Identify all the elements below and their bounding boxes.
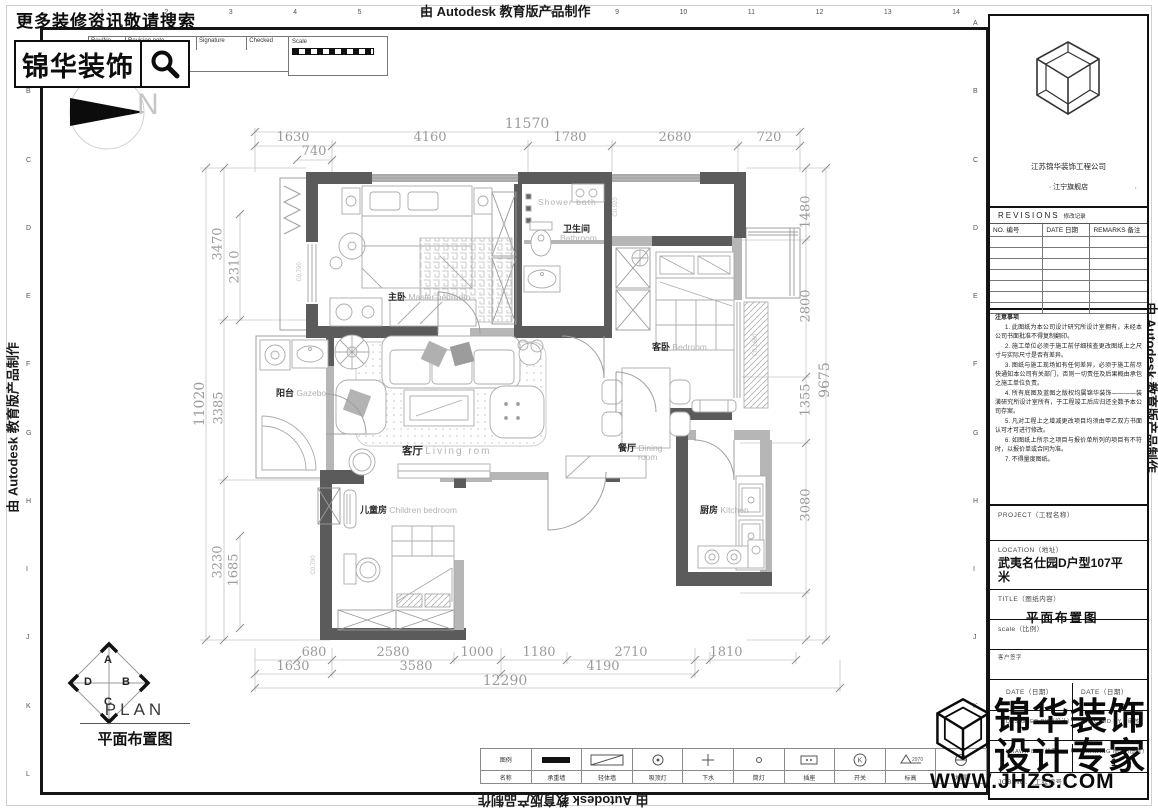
dim: 2800: [799, 289, 814, 322]
room-bath-en: Bathroom: [560, 233, 597, 243]
window-code: C0.1680: [753, 334, 759, 357]
field-scale: scale（比例）: [990, 620, 1147, 650]
revisions-cell: [1090, 237, 1147, 247]
legend-label: 承重墙: [532, 771, 582, 783]
revisions-cell: [1043, 259, 1090, 269]
store-name: · 江宁旗舰店: [990, 182, 1147, 192]
search-icon: [142, 42, 188, 86]
legend-title-text: 图例: [500, 755, 512, 764]
panel-notes-section: 注意事项 1. 此图纸为本公司设计研究所设计室拥有，未经本公司书面批准不得复制翻…: [990, 310, 1147, 506]
dim-top-total: 11570: [505, 116, 550, 132]
cad-floorplan-page: 1234567891011121314 ABCDEFGHIJKL ABCDEFG…: [0, 0, 1158, 810]
room-label-guest: 客卧 Bedroom: [652, 340, 707, 353]
floor-plan-drawing: [0, 0, 1158, 810]
revisions-cell: [1043, 237, 1090, 247]
watermark-cube-logo: [934, 696, 992, 762]
revisions-col-1: DATE 日期: [1043, 224, 1090, 236]
room-living-en: Living rom: [425, 446, 491, 457]
compass-d: D: [84, 676, 92, 688]
dim: 2680: [658, 130, 691, 145]
title-block-panel: 江苏锦华装饰工程公司 · 江宁旗舰店 · REVISIONS 修改记录 NO. …: [988, 14, 1149, 800]
revisions-cell: [1043, 248, 1090, 258]
title-label: TITLE（图纸内容）: [998, 596, 1060, 603]
dim: 3580: [399, 659, 432, 674]
dim: 1630: [276, 659, 309, 674]
revisions-title-en: REVISIONS: [998, 211, 1060, 220]
legend-symbol-solid-wall: [532, 749, 582, 771]
dim: 1780: [553, 130, 586, 145]
project-label: PROJECT（工程名称）: [998, 512, 1074, 519]
legend-label: 插座: [785, 771, 835, 783]
dim: 4160: [413, 130, 446, 145]
legend-symbol-elevation: 2970: [886, 749, 936, 771]
note-item-7: 7. 不得量度图纸。: [995, 456, 1142, 465]
revisions-cell: [990, 248, 1043, 258]
legend-strip: 图例名称承重墙轻体墙吸顶灯下水筒灯插座K开关2970标高地漏: [480, 748, 987, 784]
legend-label: 筒灯: [734, 771, 784, 783]
plan-title-en: PLAN: [80, 700, 190, 720]
room-guest-en: Bedroom: [672, 342, 707, 352]
revisions-title: REVISIONS 修改记录: [990, 208, 1147, 224]
room-children-en: Children bedroom: [389, 505, 457, 515]
legend-symbol-light-wall: [582, 749, 632, 771]
revisions-cell: [1090, 248, 1147, 258]
room-shower-en: Shower bath: [538, 197, 597, 207]
legend-label: 开关: [835, 771, 885, 783]
scale-box: Scale: [288, 36, 388, 76]
room-kitchen-en: Kitchen: [720, 505, 748, 515]
dim: 1355: [799, 383, 814, 416]
dim: 3080: [799, 488, 814, 521]
revisions-row: [990, 281, 1147, 292]
scale-label: Scale: [292, 39, 307, 45]
room-living-zh: 客厅: [402, 445, 423, 457]
field-project: PROJECT（工程名称）: [990, 506, 1147, 541]
legend-symbol-downlight: [734, 749, 784, 771]
company-name: 江苏锦华装饰工程公司: [990, 161, 1147, 172]
legend-cell-轻体墙: 轻体墙: [582, 749, 633, 783]
note-item-4: 4. 所有底图及蓝图之版权均属锦华装饰————装潢研究所设计室所有，于工程竣工后…: [995, 390, 1142, 417]
notes-list: 1. 此图纸为本公司设计研究所设计室拥有，未经本公司书面批准不得复制翻印。2. …: [995, 324, 1142, 465]
panel-logo-section: 江苏锦华装饰工程公司 · 江宁旗舰店 ·: [990, 16, 1147, 208]
revisions-row: [990, 292, 1147, 303]
room-master-zh: 主卧: [388, 292, 406, 302]
checked-label: Checked: [247, 37, 289, 50]
dim: 2580: [376, 645, 409, 660]
panel-revisions-section: REVISIONS 修改记录 NO. 编号DATE 日期REMARKS 备注: [990, 208, 1147, 310]
legend-label: 下水: [683, 771, 733, 783]
room-label-dining-2: room: [638, 452, 657, 462]
dim: 1810: [709, 645, 742, 660]
room-label-living: 客厅 Living rom: [402, 443, 492, 458]
location-value: 武夷名仕园D户型107平米: [998, 556, 1124, 585]
room-label-bath-en: Bathroom: [560, 233, 597, 243]
dim: 740: [302, 144, 327, 159]
revisions-title-zh: 修改记录: [1064, 212, 1086, 220]
dim: 2310: [228, 250, 243, 283]
dim: 1685: [227, 553, 242, 586]
revisions-empty-rows: [990, 237, 1147, 314]
revisions-row: [990, 270, 1147, 281]
dim: 4190: [586, 659, 619, 674]
window-code: C0.790: [297, 262, 303, 281]
revisions-col-2: REMARKS 备注: [1090, 224, 1147, 236]
room-label-kitchen: 厨房 Kitchen: [700, 503, 749, 516]
room-balcony-zh: 阳台: [276, 388, 294, 398]
room-label-shower: Shower bath: [538, 197, 597, 207]
brand-box: 锦华装饰: [14, 40, 190, 88]
note-item-3: 3. 图纸与施工现场如有任何差异，必须于施工前尽快通知本公司有关部门，否则一切责…: [995, 362, 1142, 389]
legend-symbol-legend-title: 图例: [481, 749, 531, 771]
revisions-cell: [1043, 292, 1090, 302]
room-label-master: 主卧 Master bedroom: [388, 290, 470, 303]
brand-name: 锦华装饰: [16, 42, 142, 86]
svg-text:K: K: [858, 757, 863, 764]
revisions-row: [990, 259, 1147, 270]
room-guest-zh: 客卧: [652, 342, 670, 352]
window-code: C0.790: [311, 555, 317, 574]
revisions-cell: [1043, 281, 1090, 291]
window-code: C0.920: [613, 197, 619, 216]
compass-b: B: [122, 676, 130, 688]
note-item-1: 1. 此图纸为本公司设计研究所设计室拥有，未经本公司书面批准不得复制翻印。: [995, 324, 1142, 342]
field-client-sign: 客户签字: [990, 650, 1147, 680]
dim: 720: [757, 130, 782, 145]
revisions-cell: [1090, 259, 1147, 269]
scale-bar: [292, 48, 374, 55]
svg-text:2970: 2970: [912, 757, 923, 763]
scale-field-label: scale（比例）: [998, 626, 1044, 633]
revisions-cell: [990, 281, 1043, 291]
revisions-cell: [990, 259, 1043, 269]
legend-symbol-ceiling-lamp: [633, 749, 683, 771]
dim: 3230: [211, 545, 226, 578]
legend-label: 吸顶灯: [633, 771, 683, 783]
revisions-col-0: NO. 编号: [990, 224, 1043, 236]
field-title: TITLE（图纸内容） 平面布置图: [990, 590, 1147, 620]
dim: 1000: [460, 645, 493, 660]
dim: 2710: [614, 645, 647, 660]
revisions-header-row: NO. 编号DATE 日期REMARKS 备注: [990, 224, 1147, 237]
note-item-6: 6. 如图纸上所示之项目与报价单所列的项目有不符时，以报价单或合同为准。: [995, 437, 1142, 455]
note-item-5: 5. 凡对工程上之增减更改项目均须由甲乙双方书面认可才可进行修改。: [995, 418, 1142, 436]
room-kitchen-zh: 厨房: [700, 505, 718, 515]
room-balcony-en: Gazebo: [296, 388, 326, 398]
room-dining-zh: 餐厅: [618, 443, 636, 453]
revisions-cell: [990, 270, 1043, 280]
room-dining-en2: room: [638, 452, 657, 462]
legend-cell-开关: K开关: [835, 749, 886, 783]
dim-bottom-total: 12290: [483, 673, 528, 689]
room-label-balcony: 阳台 Gazebo: [276, 386, 326, 399]
legend-label: 轻体墙: [582, 771, 632, 783]
room-master-en: Master bedroom: [408, 292, 470, 302]
location-label: LOCATION（地址）: [998, 547, 1063, 554]
legend-label: 标高: [886, 771, 936, 783]
room-children-zh: 儿童房: [360, 505, 387, 515]
legend-symbol-switch: K: [835, 749, 885, 771]
signature-label: Signature: [197, 37, 247, 50]
legend-cell-吸顶灯: 吸顶灯: [633, 749, 684, 783]
revisions-cell: [990, 237, 1043, 247]
revisions-cell: [1043, 270, 1090, 280]
notes-title: 注意事项: [995, 314, 1142, 323]
compass-a: A: [104, 654, 112, 666]
legend-cell-承重墙: 承重墙: [532, 749, 583, 783]
dim: 1180: [522, 645, 555, 660]
revisions-cell: [1090, 270, 1147, 280]
plan-title-zh: 平面布置图: [80, 728, 190, 749]
legend-symbol-cross: [683, 749, 733, 771]
legend-label: 名称: [481, 771, 531, 783]
legend-cell-标高: 2970标高: [886, 749, 937, 783]
dim: 1480: [799, 195, 814, 228]
legend-cell-筒灯: 筒灯: [734, 749, 785, 783]
dim-right-total: 9675: [817, 362, 833, 398]
store-dot: ·: [1135, 185, 1137, 192]
revisions-cell: [990, 292, 1043, 302]
legend-cell-名称: 图例名称: [481, 749, 532, 783]
revisions-cell: [1090, 281, 1147, 291]
dim: 3385: [212, 391, 227, 424]
field-location: LOCATION（地址） 武夷名仕园D户型107平米: [990, 541, 1147, 590]
plan-title-divider: [80, 723, 190, 724]
client-sign-label: 客户签字: [998, 655, 1022, 661]
watermark-url: WWW.JHZS.COM: [930, 770, 1115, 794]
room-label-children: 儿童房 Children bedroom: [360, 503, 457, 516]
revisions-cell: [1090, 292, 1147, 302]
legend-symbol-socket: [785, 749, 835, 771]
dim: 3470: [211, 227, 226, 260]
legend-cell-下水: 下水: [683, 749, 734, 783]
revisions-row: [990, 248, 1147, 259]
company-cube-logo: [1033, 38, 1103, 118]
note-item-2: 2. 施工单位必须于施工前仔细核查更改图纸上之尺寸与实际尺寸是否有差异。: [995, 343, 1142, 361]
plan-title: PLAN 平面布置图: [80, 700, 190, 749]
legend-cell-插座: 插座: [785, 749, 836, 783]
dim: 680: [302, 645, 327, 660]
dim-left-total: 11020: [192, 382, 208, 427]
dim: 1630: [276, 130, 309, 145]
revisions-row: [990, 237, 1147, 248]
